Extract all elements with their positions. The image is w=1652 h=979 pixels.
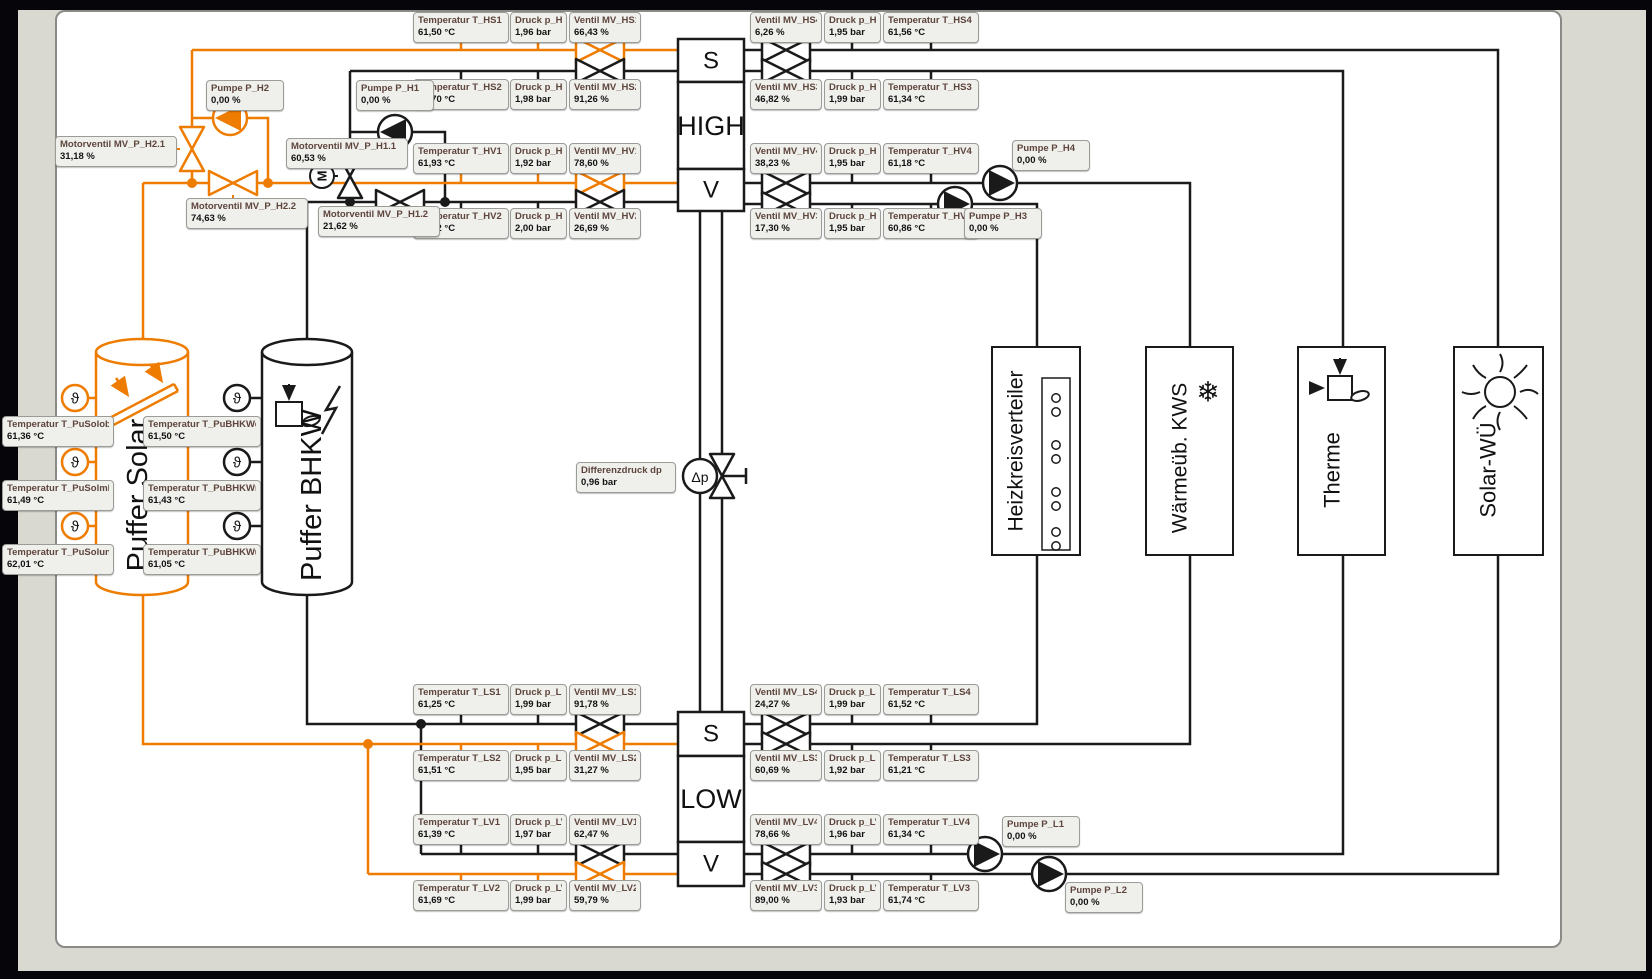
label-mv-ls4: Ventil MV_LS424,27 % bbox=[750, 684, 822, 715]
label-title: Druck p_LV4 bbox=[829, 817, 876, 829]
label-value: 74,63 % bbox=[191, 213, 303, 225]
label-mv-hs3: Ventil MV_HS346,82 % bbox=[750, 79, 822, 110]
label-mv-ls3: Ventil MV_LS360,69 % bbox=[750, 750, 822, 781]
label-title: Druck p_HV3 bbox=[829, 211, 876, 223]
label-title: Temperatur T_PuSolml bbox=[7, 483, 109, 495]
label-t-pusolob: Temperatur T_PuSolob61,36 °C bbox=[2, 416, 114, 447]
label-title: Temperatur T_LV3 bbox=[888, 883, 974, 895]
label-value: 1,96 bar bbox=[515, 27, 562, 39]
label-title: Temperatur T_LS1 bbox=[418, 687, 504, 699]
label-title: Motorventil MV_P_H1.2 bbox=[323, 209, 435, 221]
label-value: 61,49 °C bbox=[7, 495, 109, 507]
label-p-hv4: Druck p_HV41,95 bar bbox=[824, 143, 881, 174]
label-title: Ventil MV_LV4 bbox=[755, 817, 817, 829]
sensor-t-pubhkwml: ϑ bbox=[224, 449, 250, 475]
label-value: 1,99 bar bbox=[829, 94, 876, 106]
label-p-lv2: Druck p_LV21,99 bar bbox=[510, 880, 567, 911]
label-title: Temperatur T_PuBHKWml bbox=[148, 483, 256, 495]
label-t-pubhkwml: Temperatur T_PuBHKWml61,43 °C bbox=[143, 480, 261, 511]
label-value: 89,00 % bbox=[755, 895, 817, 907]
pump-p-l2[interactable] bbox=[1032, 857, 1066, 891]
label-title: Druck p_LS4 bbox=[829, 687, 876, 699]
label-value: 62,47 % bbox=[574, 829, 636, 841]
label-value: 0,00 % bbox=[361, 95, 429, 107]
label-t-hs4: Temperatur T_HS461,56 °C bbox=[883, 12, 979, 43]
label-value: 61,34 °C bbox=[888, 829, 974, 841]
label-value: 61,50 °C bbox=[148, 431, 256, 443]
label-value: 78,66 % bbox=[755, 829, 817, 841]
label-title: Ventil MV_HS3 bbox=[755, 82, 817, 94]
label-value: 62,01 °C bbox=[7, 559, 109, 571]
label-title: Druck p_HV4 bbox=[829, 146, 876, 158]
label-p-hv1: Druck p_HV11,92 bar bbox=[510, 143, 567, 174]
label-t-lv3: Temperatur T_LV361,74 °C bbox=[883, 880, 979, 911]
sensor-t-pusolun: ϑ bbox=[62, 513, 88, 539]
label-value: 61,51 °C bbox=[418, 765, 504, 777]
label-t-pusolun: Temperatur T_PuSolun62,01 °C bbox=[2, 544, 114, 575]
label-mv-hs1: Ventil MV_HS166,43 % bbox=[569, 12, 641, 43]
label-mv-p-h1-1: Motorventil MV_P_H1.160,53 % bbox=[286, 138, 408, 169]
label-title: Ventil MV_HS1 bbox=[574, 15, 636, 27]
label-title: Ventil MV_HS2 bbox=[574, 82, 636, 94]
label-value: 60,53 % bbox=[291, 153, 403, 165]
label-p-ls4: Druck p_LS41,99 bar bbox=[824, 684, 881, 715]
label-value: 66,43 % bbox=[574, 27, 636, 39]
label-title: Druck p_HS4 bbox=[829, 15, 876, 27]
label-title: Ventil MV_LV3 bbox=[755, 883, 817, 895]
label-value: 1,95 bar bbox=[829, 223, 876, 235]
label-value: 91,78 % bbox=[574, 699, 636, 711]
label-mv-p-h1-2: Motorventil MV_P_H1.221,62 % bbox=[318, 206, 440, 237]
label-value: 61,52 °C bbox=[888, 699, 974, 711]
label-value: 61,18 °C bbox=[888, 158, 974, 170]
svg-text:ϑ: ϑ bbox=[71, 519, 80, 536]
label-value: 1,99 bar bbox=[515, 699, 562, 711]
label-t-lv1: Temperatur T_LV161,39 °C bbox=[413, 814, 509, 845]
label-t-hs3: Temperatur T_HS361,34 °C bbox=[883, 79, 979, 110]
label-title: Ventil MV_HV3 bbox=[755, 211, 817, 223]
label-pumpe-p-h1: Pumpe P_H10,00 % bbox=[356, 80, 434, 111]
label-title: Druck p_HS2 bbox=[515, 82, 562, 94]
label-value: 91,26 % bbox=[574, 94, 636, 106]
label-title: Temperatur T_HV1 bbox=[418, 146, 504, 158]
label-title: Ventil MV_HV2 bbox=[574, 211, 636, 223]
label-title: Ventil MV_LV2 bbox=[574, 883, 636, 895]
label-t-ls2: Temperatur T_LS261,51 °C bbox=[413, 750, 509, 781]
label-title: Motorventil MV_P_H2.1 bbox=[60, 139, 172, 151]
label-title: Temperatur T_HS1 bbox=[418, 15, 504, 27]
label-title: Motorventil MV_P_H2.2 bbox=[191, 201, 303, 213]
svg-text:M: M bbox=[315, 171, 330, 182]
svg-text:Δp: Δp bbox=[691, 469, 708, 485]
sensor-t-pusolml: ϑ bbox=[62, 449, 88, 475]
label-value: 61,34 °C bbox=[888, 94, 974, 106]
label-mv-hs2: Ventil MV_HS291,26 % bbox=[569, 79, 641, 110]
label-title: Temperatur T_PuBHKWun bbox=[148, 547, 256, 559]
label-p-hs2: Druck p_HS21,98 bar bbox=[510, 79, 567, 110]
sensors-bhkw: ϑ ϑ ϑ bbox=[224, 385, 250, 539]
label-value: 61,69 °C bbox=[418, 895, 504, 907]
label-title: Temperatur T_HS4 bbox=[888, 15, 974, 27]
svg-text:ϑ: ϑ bbox=[71, 455, 80, 472]
label-t-lv2: Temperatur T_LV261,69 °C bbox=[413, 880, 509, 911]
label-p-hs4: Druck p_HS41,95 bar bbox=[824, 12, 881, 43]
label-value: 61,74 °C bbox=[888, 895, 974, 907]
label-value: 17,30 % bbox=[755, 223, 817, 235]
label-title: Temperatur T_LV2 bbox=[418, 883, 504, 895]
label-title: Ventil MV_LS2 bbox=[574, 753, 636, 765]
label-value: 1,92 bar bbox=[829, 765, 876, 777]
label-p-lv1: Druck p_LV11,97 bar bbox=[510, 814, 567, 845]
label-value: 61,43 °C bbox=[148, 495, 256, 507]
svg-text:ϑ: ϑ bbox=[233, 455, 242, 472]
label-value: 1,95 bar bbox=[515, 765, 562, 777]
label-title: Motorventil MV_P_H1.1 bbox=[291, 141, 403, 153]
label-mv-hv4: Ventil MV_HV438,23 % bbox=[750, 143, 822, 174]
label-title: Pumpe P_H4 bbox=[1017, 143, 1085, 155]
label-value: 1,99 bar bbox=[515, 895, 562, 907]
label-t-ls1: Temperatur T_LS161,25 °C bbox=[413, 684, 509, 715]
label-t-ls3: Temperatur T_LS361,21 °C bbox=[883, 750, 979, 781]
label-value: 31,27 % bbox=[574, 765, 636, 777]
label-value: 1,98 bar bbox=[515, 94, 562, 106]
label-title: Differenzdruck dp bbox=[581, 465, 671, 477]
label-t-pubhkwun: Temperatur T_PuBHKWun61,05 °C bbox=[143, 544, 261, 575]
label-t-hv4: Temperatur T_HV461,18 °C bbox=[883, 143, 979, 174]
sensor-t-pusolob: ϑ bbox=[62, 385, 88, 411]
label-p-hv3: Druck p_HV31,95 bar bbox=[824, 208, 881, 239]
label-pumpe-p-h3: Pumpe P_H30,00 % bbox=[964, 208, 1042, 239]
label-title: Druck p_HV1 bbox=[515, 146, 562, 158]
label-title: Druck p_HV2 bbox=[515, 211, 562, 223]
label-value: 46,82 % bbox=[755, 94, 817, 106]
label-p-lv4: Druck p_LV41,96 bar bbox=[824, 814, 881, 845]
label-title: Druck p_LS3 bbox=[829, 753, 876, 765]
label-title: Temperatur T_HV4 bbox=[888, 146, 974, 158]
label-differenzdruck: Differenzdruck dp0,96 bar bbox=[576, 462, 676, 493]
label-t-pusolml: Temperatur T_PuSolml61,49 °C bbox=[2, 480, 114, 511]
scada-heating-schematic: Puffer Solar Puffer BHKW ϑ ϑ bbox=[0, 0, 1652, 979]
label-value: 1,95 bar bbox=[829, 158, 876, 170]
label-value: 1,92 bar bbox=[515, 158, 562, 170]
label-mv-hv3: Ventil MV_HV317,30 % bbox=[750, 208, 822, 239]
label-value: 0,00 % bbox=[211, 95, 279, 107]
label-value: 61,36 °C bbox=[7, 431, 109, 443]
label-value: 61,93 °C bbox=[418, 158, 504, 170]
label-title: Druck p_LV3 bbox=[829, 883, 876, 895]
label-p-hv2: Druck p_HV22,00 bar bbox=[510, 208, 567, 239]
label-p-ls1: Druck p_LS11,99 bar bbox=[510, 684, 567, 715]
label-value: 1,93 bar bbox=[829, 895, 876, 907]
label-t-ls4: Temperatur T_LS461,52 °C bbox=[883, 684, 979, 715]
label-title: Druck p_HS3 bbox=[829, 82, 876, 94]
label-value: 61,50 °C bbox=[418, 27, 504, 39]
label-value: 0,00 % bbox=[1007, 831, 1075, 843]
label-pumpe-p-l1: Pumpe P_L10,00 % bbox=[1002, 816, 1080, 847]
label-p-ls2: Druck p_LS21,95 bar bbox=[510, 750, 567, 781]
label-title: Pumpe P_H1 bbox=[361, 83, 429, 95]
label-value: 31,18 % bbox=[60, 151, 172, 163]
label-pumpe-p-l2: Pumpe P_L20,00 % bbox=[1065, 882, 1143, 913]
label-title: Druck p_LS1 bbox=[515, 687, 562, 699]
label-mv-p-h2-2: Motorventil MV_P_H2.274,63 % bbox=[186, 198, 308, 229]
label-title: Ventil MV_HV4 bbox=[755, 146, 817, 158]
label-title: Pumpe P_H2 bbox=[211, 83, 279, 95]
label-value: 61,56 °C bbox=[888, 27, 974, 39]
label-value: 61,25 °C bbox=[418, 699, 504, 711]
label-value: 2,00 bar bbox=[515, 223, 562, 235]
label-p-hs3: Druck p_HS31,99 bar bbox=[824, 79, 881, 110]
label-title: Pumpe P_L1 bbox=[1007, 819, 1075, 831]
label-value: 38,23 % bbox=[755, 158, 817, 170]
label-title: Druck p_LV1 bbox=[515, 817, 562, 829]
label-mv-lv1: Ventil MV_LV162,47 % bbox=[569, 814, 641, 845]
svg-text:ϑ: ϑ bbox=[233, 519, 242, 536]
label-value: 61,05 °C bbox=[148, 559, 256, 571]
label-title: Ventil MV_LS3 bbox=[755, 753, 817, 765]
label-title: Temperatur T_PuSolun bbox=[7, 547, 109, 559]
label-value: 1,96 bar bbox=[829, 829, 876, 841]
label-value: 0,96 bar bbox=[581, 477, 671, 489]
label-value: 0,00 % bbox=[1017, 155, 1085, 167]
label-pumpe-p-h4: Pumpe P_H40,00 % bbox=[1012, 140, 1090, 171]
pump-p-h4[interactable] bbox=[983, 166, 1017, 200]
label-mv-ls1: Ventil MV_LS191,78 % bbox=[569, 684, 641, 715]
label-value: 24,27 % bbox=[755, 699, 817, 711]
label-title: Druck p_LV2 bbox=[515, 883, 562, 895]
label-value: 6,26 % bbox=[755, 27, 817, 39]
label-value: 59,79 % bbox=[574, 895, 636, 907]
label-mv-lv2: Ventil MV_LV259,79 % bbox=[569, 880, 641, 911]
label-title: Ventil MV_HS4 bbox=[755, 15, 817, 27]
label-title: Temperatur T_PuSolob bbox=[7, 419, 109, 431]
label-mv-ls2: Ventil MV_LS231,27 % bbox=[569, 750, 641, 781]
label-title: Temperatur T_LV4 bbox=[888, 817, 974, 829]
label-value: 21,62 % bbox=[323, 221, 435, 233]
label-title: Pumpe P_H3 bbox=[969, 211, 1037, 223]
label-title: Ventil MV_LV1 bbox=[574, 817, 636, 829]
label-value: 1,99 bar bbox=[829, 699, 876, 711]
label-title: Ventil MV_HV1 bbox=[574, 146, 636, 158]
label-value: 1,95 bar bbox=[829, 27, 876, 39]
svg-text:ϑ: ϑ bbox=[233, 391, 242, 408]
svg-text:ϑ: ϑ bbox=[71, 391, 80, 408]
label-p-hs1: Druck p_HS11,96 bar bbox=[510, 12, 567, 43]
label-mv-hv1: Ventil MV_HV178,60 % bbox=[569, 143, 641, 174]
label-t-lv4: Temperatur T_LV461,34 °C bbox=[883, 814, 979, 845]
sensors-solar: ϑ ϑ ϑ bbox=[62, 385, 88, 539]
label-t-hv1: Temperatur T_HV161,93 °C bbox=[413, 143, 509, 174]
label-title: Temperatur T_HV3 bbox=[888, 211, 974, 223]
label-p-ls3: Druck p_LS31,92 bar bbox=[824, 750, 881, 781]
label-value: 78,60 % bbox=[574, 158, 636, 170]
sensor-t-pubhkwob: ϑ bbox=[224, 385, 250, 411]
diff-pressure-instrument[interactable]: Δp bbox=[683, 459, 717, 493]
label-title: Pumpe P_L2 bbox=[1070, 885, 1138, 897]
label-p-lv3: Druck p_LV31,93 bar bbox=[824, 880, 881, 911]
label-title: Temperatur T_LS3 bbox=[888, 753, 974, 765]
label-value: 0,00 % bbox=[1070, 897, 1138, 909]
label-value: 26,69 % bbox=[574, 223, 636, 235]
label-mv-hv2: Ventil MV_HV226,69 % bbox=[569, 208, 641, 239]
label-title: Ventil MV_LS1 bbox=[574, 687, 636, 699]
label-title: Temperatur T_LS2 bbox=[418, 753, 504, 765]
label-value: 1,97 bar bbox=[515, 829, 562, 841]
label-value: 61,21 °C bbox=[888, 765, 974, 777]
label-t-pubhkwob: Temperatur T_PuBHKWob61,50 °C bbox=[143, 416, 261, 447]
label-t-hs1: Temperatur T_HS161,50 °C bbox=[413, 12, 509, 43]
label-mv-hs4: Ventil MV_HS46,26 % bbox=[750, 12, 822, 43]
label-title: Druck p_HS1 bbox=[515, 15, 562, 27]
label-title: Druck p_LS2 bbox=[515, 753, 562, 765]
label-title: Temperatur T_LV1 bbox=[418, 817, 504, 829]
label-title: Temperatur T_HS3 bbox=[888, 82, 974, 94]
label-value: 61,39 °C bbox=[418, 829, 504, 841]
label-title: Temperatur T_PuBHKWob bbox=[148, 419, 256, 431]
sensor-t-pubhkwun: ϑ bbox=[224, 513, 250, 539]
label-mv-lv3: Ventil MV_LV389,00 % bbox=[750, 880, 822, 911]
label-value: 0,00 % bbox=[969, 223, 1037, 235]
label-mv-p-h2-1: Motorventil MV_P_H2.131,18 % bbox=[55, 136, 177, 167]
label-mv-lv4: Ventil MV_LV478,66 % bbox=[750, 814, 822, 845]
label-title: Temperatur T_LS4 bbox=[888, 687, 974, 699]
label-value: 60,69 % bbox=[755, 765, 817, 777]
label-title: Ventil MV_LS4 bbox=[755, 687, 817, 699]
label-pumpe-p-h2: Pumpe P_H20,00 % bbox=[206, 80, 284, 111]
label-value: 60,86 °C bbox=[888, 223, 974, 235]
